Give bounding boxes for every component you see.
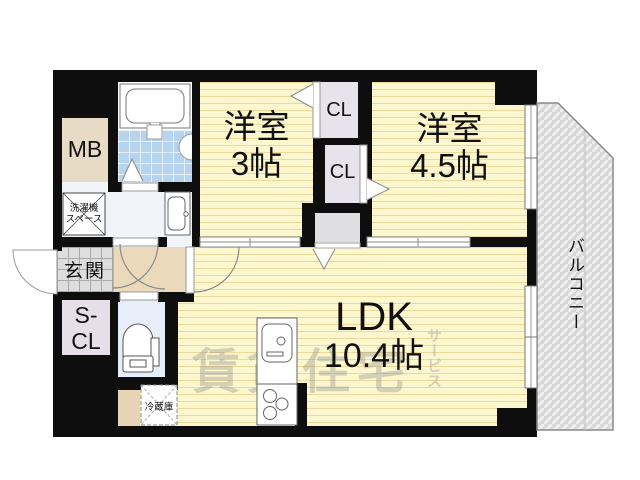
storage-door bbox=[315, 243, 360, 248]
toilet-door bbox=[120, 292, 158, 300]
fixtures-layer bbox=[0, 0, 640, 480]
closet2-door bbox=[360, 145, 367, 203]
ldk-size: 10.4帖 bbox=[289, 338, 459, 374]
washer-space-line2: スペース bbox=[60, 214, 108, 225]
bedroom1-size: 3帖 bbox=[200, 145, 313, 182]
ldk-name: LDK bbox=[289, 296, 459, 338]
closet1-label: CL bbox=[320, 99, 358, 122]
washer-space-label: 洗濯機 スペース bbox=[60, 203, 108, 225]
entrance-label: 玄関 bbox=[57, 256, 113, 283]
ldk-door bbox=[186, 247, 194, 293]
shoe-closet-line1: S- bbox=[62, 302, 110, 328]
bedroom1-label: 洋室 3帖 bbox=[200, 108, 313, 182]
bath-fold-icon bbox=[122, 159, 143, 181]
sliding-door-bedroom1 bbox=[200, 237, 300, 247]
closet1-fold-icon bbox=[291, 84, 313, 108]
refrigerator-label: 冷蔵庫 bbox=[141, 399, 177, 413]
closet2-label: CL bbox=[325, 161, 360, 184]
bedroom2-label: 洋室 4.5帖 bbox=[372, 110, 527, 184]
bedroom2-name: 洋室 bbox=[372, 110, 527, 147]
bath-door bbox=[122, 183, 158, 191]
shoe-closet-label: S- CL bbox=[62, 302, 110, 354]
floorplan-canvas: 賃貸住宅 サービス bbox=[0, 0, 640, 480]
closet1-door bbox=[313, 82, 320, 138]
meter-box-label: MB bbox=[62, 136, 108, 163]
hall-door-swing bbox=[120, 244, 165, 289]
bedroom2-size: 4.5帖 bbox=[372, 147, 527, 184]
balcony-label: バルコニー bbox=[562, 222, 587, 347]
entrance-door-swing bbox=[13, 250, 57, 294]
storage-fold-icon bbox=[313, 249, 335, 269]
sliding-door-bedroom2 bbox=[367, 237, 470, 247]
bathtub-icon bbox=[120, 84, 192, 160]
ldk-door-swing bbox=[194, 247, 239, 292]
bedroom1-name: 洋室 bbox=[200, 108, 313, 145]
washbasin-icon bbox=[165, 192, 190, 235]
ldk-label: LDK 10.4帖 bbox=[289, 296, 459, 374]
window-ldk bbox=[525, 286, 537, 388]
toilet-icon bbox=[123, 324, 159, 372]
shoe-closet-line2: CL bbox=[62, 328, 110, 354]
washer-space-line1: 洗濯機 bbox=[60, 203, 108, 214]
